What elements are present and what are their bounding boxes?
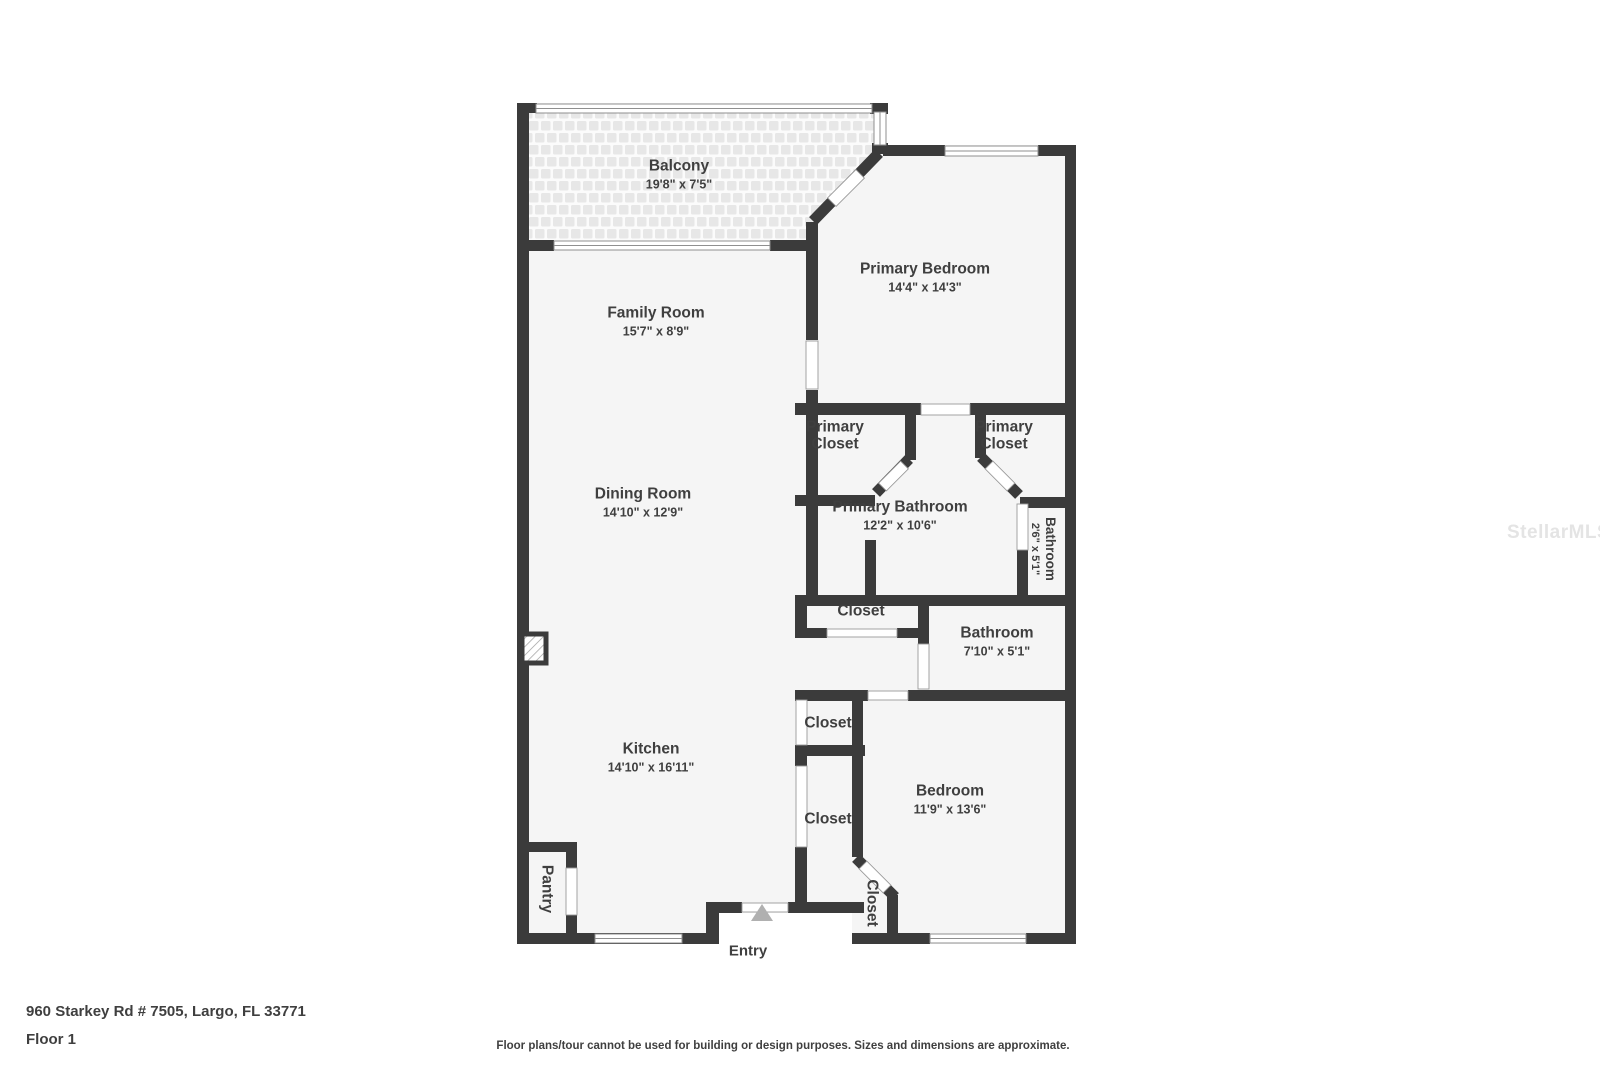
entry-label: Entry bbox=[729, 943, 767, 960]
floorplan-drawing bbox=[0, 0, 1600, 1066]
disclaimer-text: Floor plans/tour cannot be used for buil… bbox=[496, 1040, 1069, 1052]
fireplace-hatch bbox=[522, 634, 546, 663]
room-label-primary-closet-right: Primary Closet bbox=[957, 419, 1051, 452]
room-label-primary-bathroom: Primary Bathroom 12'2" x 10'6" bbox=[832, 499, 967, 532]
room-label-small-bathroom: Bathroom 2'6" x 5'1" bbox=[1029, 517, 1057, 581]
floorplan-page: Balcony 19'8" x 7'5" Family Room 15'7" x… bbox=[0, 0, 1600, 1066]
room-label-bedroom: Bedroom 11'9" x 13'6" bbox=[914, 783, 987, 816]
address-text: 960 Starkey Rd # 7505, Largo, FL 33771 bbox=[26, 1003, 306, 1020]
room-label-closet-upper: Closet bbox=[804, 716, 851, 733]
room-label-primary-bedroom: Primary Bedroom 14'4" x 14'3" bbox=[860, 261, 990, 294]
room-label-bedroom-closet: Closet bbox=[863, 879, 880, 926]
room-label-kitchen: Kitchen 14'10" x 16'11" bbox=[608, 741, 695, 774]
floor-number-text: Floor 1 bbox=[26, 1031, 76, 1048]
room-label-pantry: Pantry bbox=[538, 865, 555, 913]
room-label-family-room: Family Room 15'7" x 8'9" bbox=[607, 305, 704, 338]
room-label-hall-closet: Closet bbox=[837, 604, 884, 621]
room-label-closet-lower: Closet bbox=[804, 812, 851, 829]
room-label-primary-closet-left: Primary Closet bbox=[788, 419, 882, 452]
room-label-balcony: Balcony 19'8" x 7'5" bbox=[646, 158, 712, 191]
stellar-mls-watermark: StellarMLS bbox=[1507, 522, 1600, 544]
room-label-bathroom: Bathroom 7'10" x 5'1" bbox=[960, 625, 1033, 658]
room-label-dining-room: Dining Room 14'10" x 12'9" bbox=[595, 486, 691, 519]
